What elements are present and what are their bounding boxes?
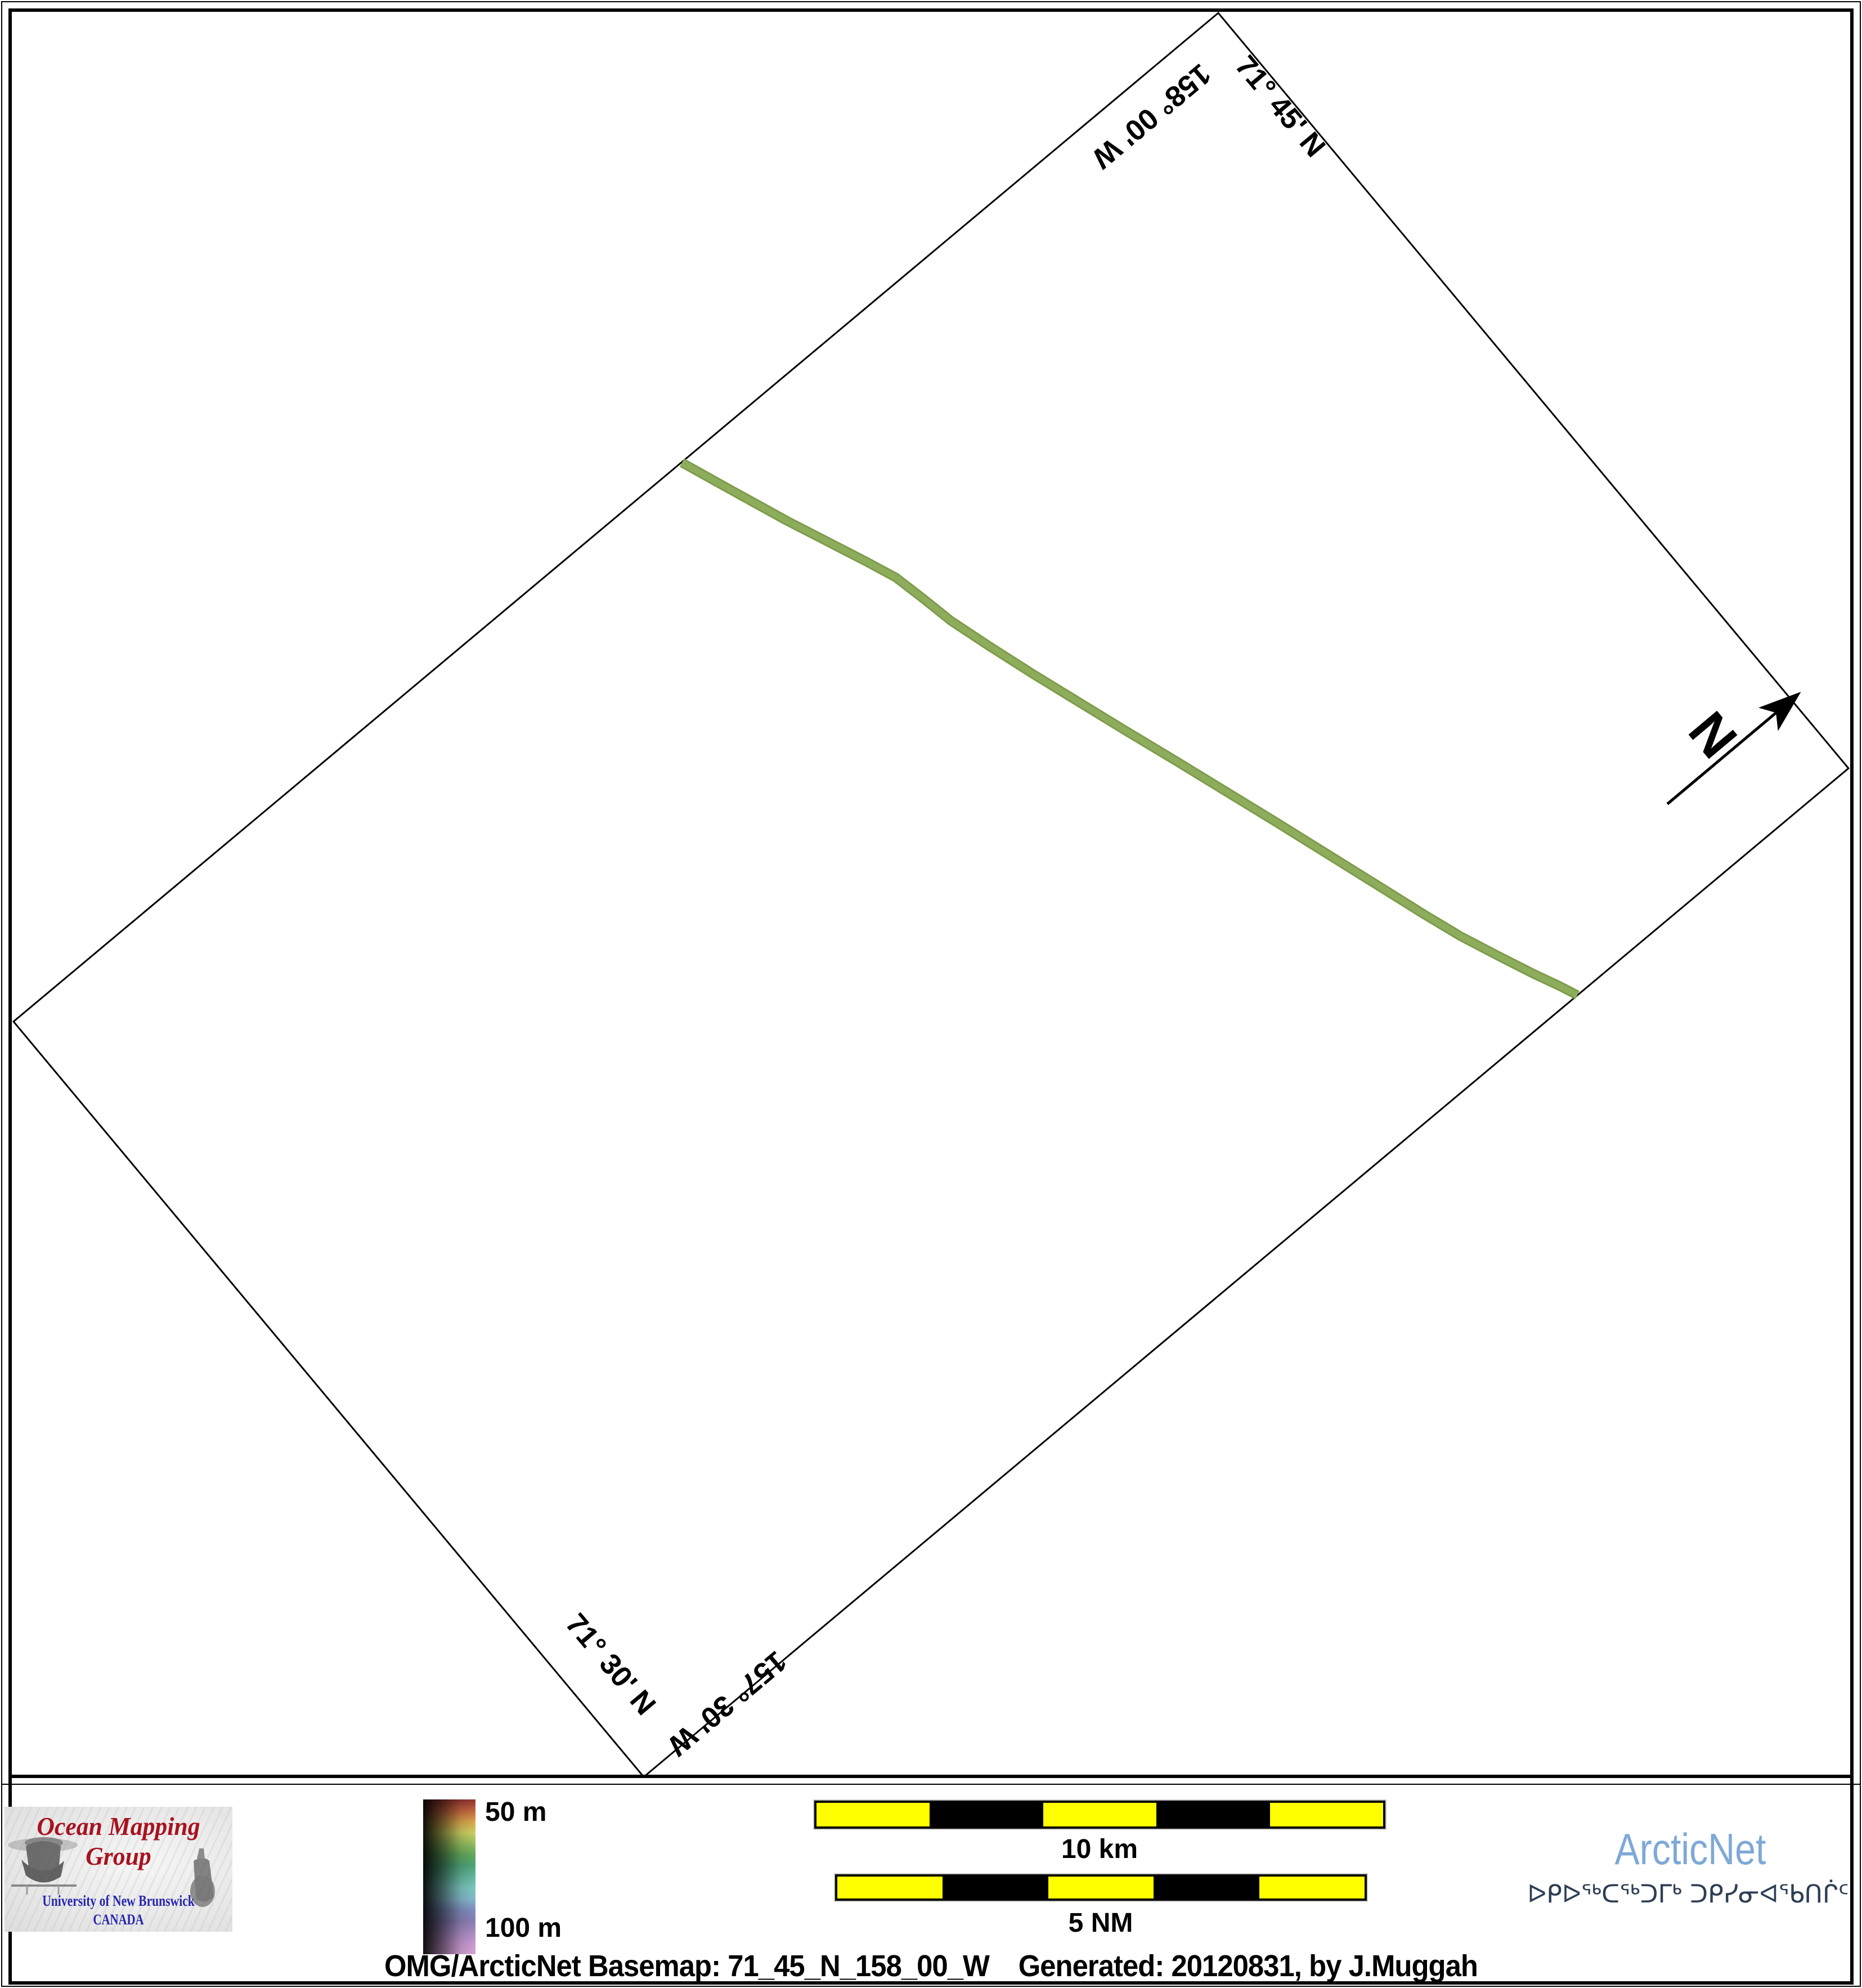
omg-logo-title: Ocean Mapping Group bbox=[10, 1811, 227, 1871]
scalebar-km bbox=[814, 1801, 1385, 1829]
map-canvas: 158° 00' W71° 45' N71° 30' N157° 30' W N bbox=[0, 0, 1862, 1988]
scalebar-nm bbox=[835, 1874, 1367, 1901]
north-arrow: N bbox=[1640, 659, 1811, 816]
omg-logo-subtitle: University of New Brunswick bbox=[28, 1892, 210, 1910]
scalebar-segment bbox=[816, 1803, 930, 1826]
omg-logo: Ocean Mapping Group University of New Br… bbox=[5, 1807, 232, 1932]
survey-track-outline bbox=[682, 463, 1577, 995]
scalebar-segment bbox=[837, 1877, 943, 1899]
scalebar-segment bbox=[1259, 1877, 1365, 1899]
graticule-labels: 158° 00' W71° 45' N71° 30' N157° 30' W bbox=[559, 50, 1332, 1762]
caption-generated: Generated: 20120831, by J.Muggah bbox=[1019, 1949, 1478, 1983]
graticule-label-lon-top: 158° 00' W bbox=[1085, 57, 1217, 175]
map-sheet: 158° 00' W71° 45' N71° 30' N157° 30' W N bbox=[0, 0, 1862, 1988]
omg-logo-country: CANADA bbox=[28, 1911, 210, 1928]
colorbar-label-100m: 100 m bbox=[485, 1913, 562, 1944]
depth-colorbar bbox=[423, 1799, 475, 1954]
graticule-label-lat-top: 71° 45' N bbox=[1229, 50, 1332, 163]
graticule-boundary bbox=[14, 13, 1848, 1777]
arcticnet-logo: ArcticNet bbox=[1545, 1824, 1836, 1875]
scalebar-nm-label: 5 NM bbox=[988, 1908, 1213, 1938]
scalebar-segment bbox=[1043, 1803, 1156, 1826]
sheet-caption: OMG/ArcticNet Basemap: 71_45_N_158_00_W … bbox=[56, 1949, 1806, 1983]
north-arrow-letter: N bbox=[1677, 701, 1748, 769]
map-footer-divider-thick bbox=[9, 1775, 1853, 1778]
scalebar-segment bbox=[1048, 1877, 1154, 1899]
arcticnet-inuktitut-text: ᐅᑭᐅᖅᑕᖅᑐᒥᒃ ᑐᑭᓯᓂᐊᖃᑎᒌᑦ bbox=[1514, 1880, 1862, 1909]
map-footer-divider-thin bbox=[2, 1784, 1860, 1785]
scalebar-segment bbox=[930, 1803, 1043, 1826]
graticule-label-lat-bottom: 71° 30' N bbox=[559, 1608, 662, 1721]
scalebar-km-label: 10 km bbox=[987, 1834, 1212, 1865]
scalebar-segment bbox=[1270, 1803, 1383, 1826]
caption-basemap: OMG/ArcticNet Basemap: 71_45_N_158_00_W bbox=[384, 1949, 989, 1983]
north-arrow-head-icon bbox=[1758, 680, 1811, 731]
graticule-label-lon-bottom: 157° 30' W bbox=[661, 1645, 793, 1762]
scalebar-segment bbox=[943, 1877, 1048, 1899]
scalebar-segment bbox=[1156, 1803, 1269, 1826]
colorbar-label-50m: 50 m bbox=[485, 1797, 546, 1828]
scalebar-segment bbox=[1154, 1877, 1259, 1899]
